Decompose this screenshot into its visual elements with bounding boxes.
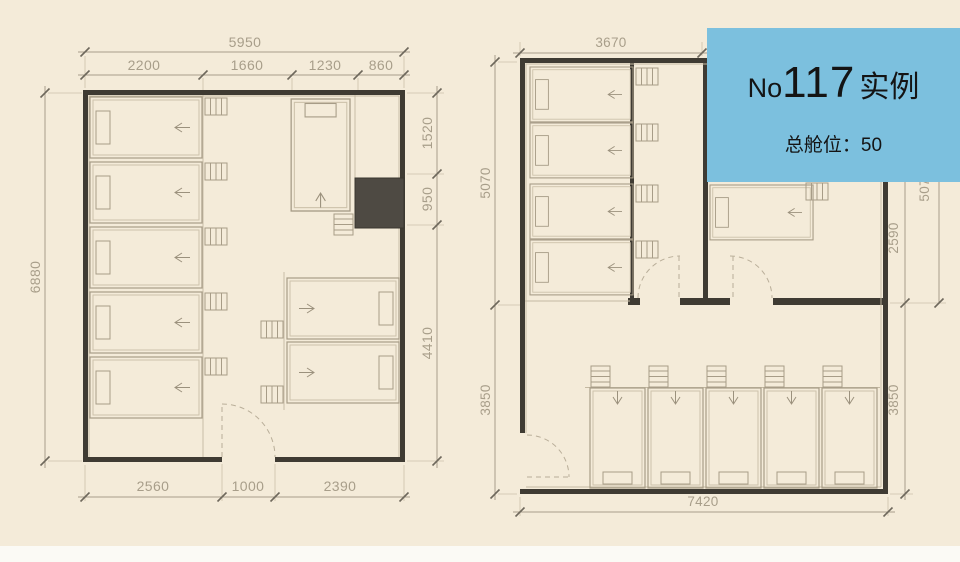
bed	[648, 388, 703, 488]
dim-left-right-950: 950	[419, 187, 435, 212]
left-plan-door-swing	[222, 404, 275, 457]
ladder-icon	[636, 68, 658, 85]
dim-left-height: 6880	[27, 261, 43, 294]
ladder-icon	[636, 241, 658, 258]
ladder-icon	[205, 293, 227, 310]
ladder-icon	[636, 185, 658, 202]
ladder-icon	[205, 163, 227, 180]
badge-subtitle: 总舱位：50	[707, 130, 960, 157]
left-plan-beds	[90, 97, 399, 418]
bed	[90, 227, 202, 288]
bed	[710, 185, 813, 240]
dim-left-bottom-2560: 2560	[137, 478, 170, 494]
dim-right-left-3850: 3850	[478, 384, 493, 415]
ladder-icon	[591, 366, 610, 387]
bottom-strip	[0, 546, 960, 562]
dim-right-right-3850: 3850	[886, 384, 901, 415]
bed	[287, 342, 399, 403]
bed	[90, 162, 202, 223]
ladder-icon	[765, 366, 784, 387]
floorplan-screenshot: 5950 2200 1660 1230 860 6880 1520 950 44…	[0, 0, 960, 562]
bed	[764, 388, 819, 488]
dim-right-right-2590: 2590	[886, 222, 901, 253]
bed	[287, 278, 399, 339]
ladder-icon	[649, 366, 668, 387]
bed	[530, 184, 633, 239]
example-badge: No117实例 总舱位：50	[707, 28, 960, 182]
bed	[590, 388, 645, 488]
bed	[530, 240, 633, 295]
dim-right-left-5070: 5070	[478, 167, 493, 198]
ladder-icon	[205, 358, 227, 375]
bed	[822, 388, 877, 488]
dim-left-right-4410: 4410	[419, 327, 435, 360]
ladder-icon	[334, 214, 353, 235]
ladder-icon	[823, 366, 842, 387]
dim-left-seg-860: 860	[369, 57, 394, 73]
bed	[530, 67, 633, 122]
bed	[90, 97, 202, 158]
bed	[530, 123, 633, 178]
ladder-icon	[261, 386, 283, 403]
left-plan-walls	[83, 90, 405, 462]
bed	[706, 388, 761, 488]
badge-title-suffix: 实例	[859, 62, 919, 106]
ladder-icon	[707, 366, 726, 387]
dim-left-total-width: 5950	[229, 34, 262, 50]
ladder-icon	[806, 183, 828, 200]
dim-left-seg-1230: 1230	[309, 57, 342, 73]
dim-left-seg-1660: 1660	[231, 57, 264, 73]
badge-title: No117实例	[707, 58, 960, 108]
bed	[90, 292, 202, 353]
dark-block	[355, 178, 404, 228]
ladder-icon	[636, 124, 658, 141]
dim-left-right-1520: 1520	[419, 117, 435, 150]
dim-left-seg-2200: 2200	[128, 57, 161, 73]
ladder-icon	[205, 228, 227, 245]
badge-title-number: 117	[782, 58, 855, 108]
ladder-icon	[205, 98, 227, 115]
dim-right-bottom-width: 7420	[687, 494, 718, 509]
dim-left-bottom-1000: 1000	[232, 478, 265, 494]
dim-right-top-width: 3670	[595, 35, 626, 50]
badge-title-prefix: No	[748, 73, 783, 104]
dim-left-bottom-2390: 2390	[324, 478, 357, 494]
ladder-icon	[261, 321, 283, 338]
bed	[90, 357, 202, 418]
bed	[291, 99, 350, 211]
